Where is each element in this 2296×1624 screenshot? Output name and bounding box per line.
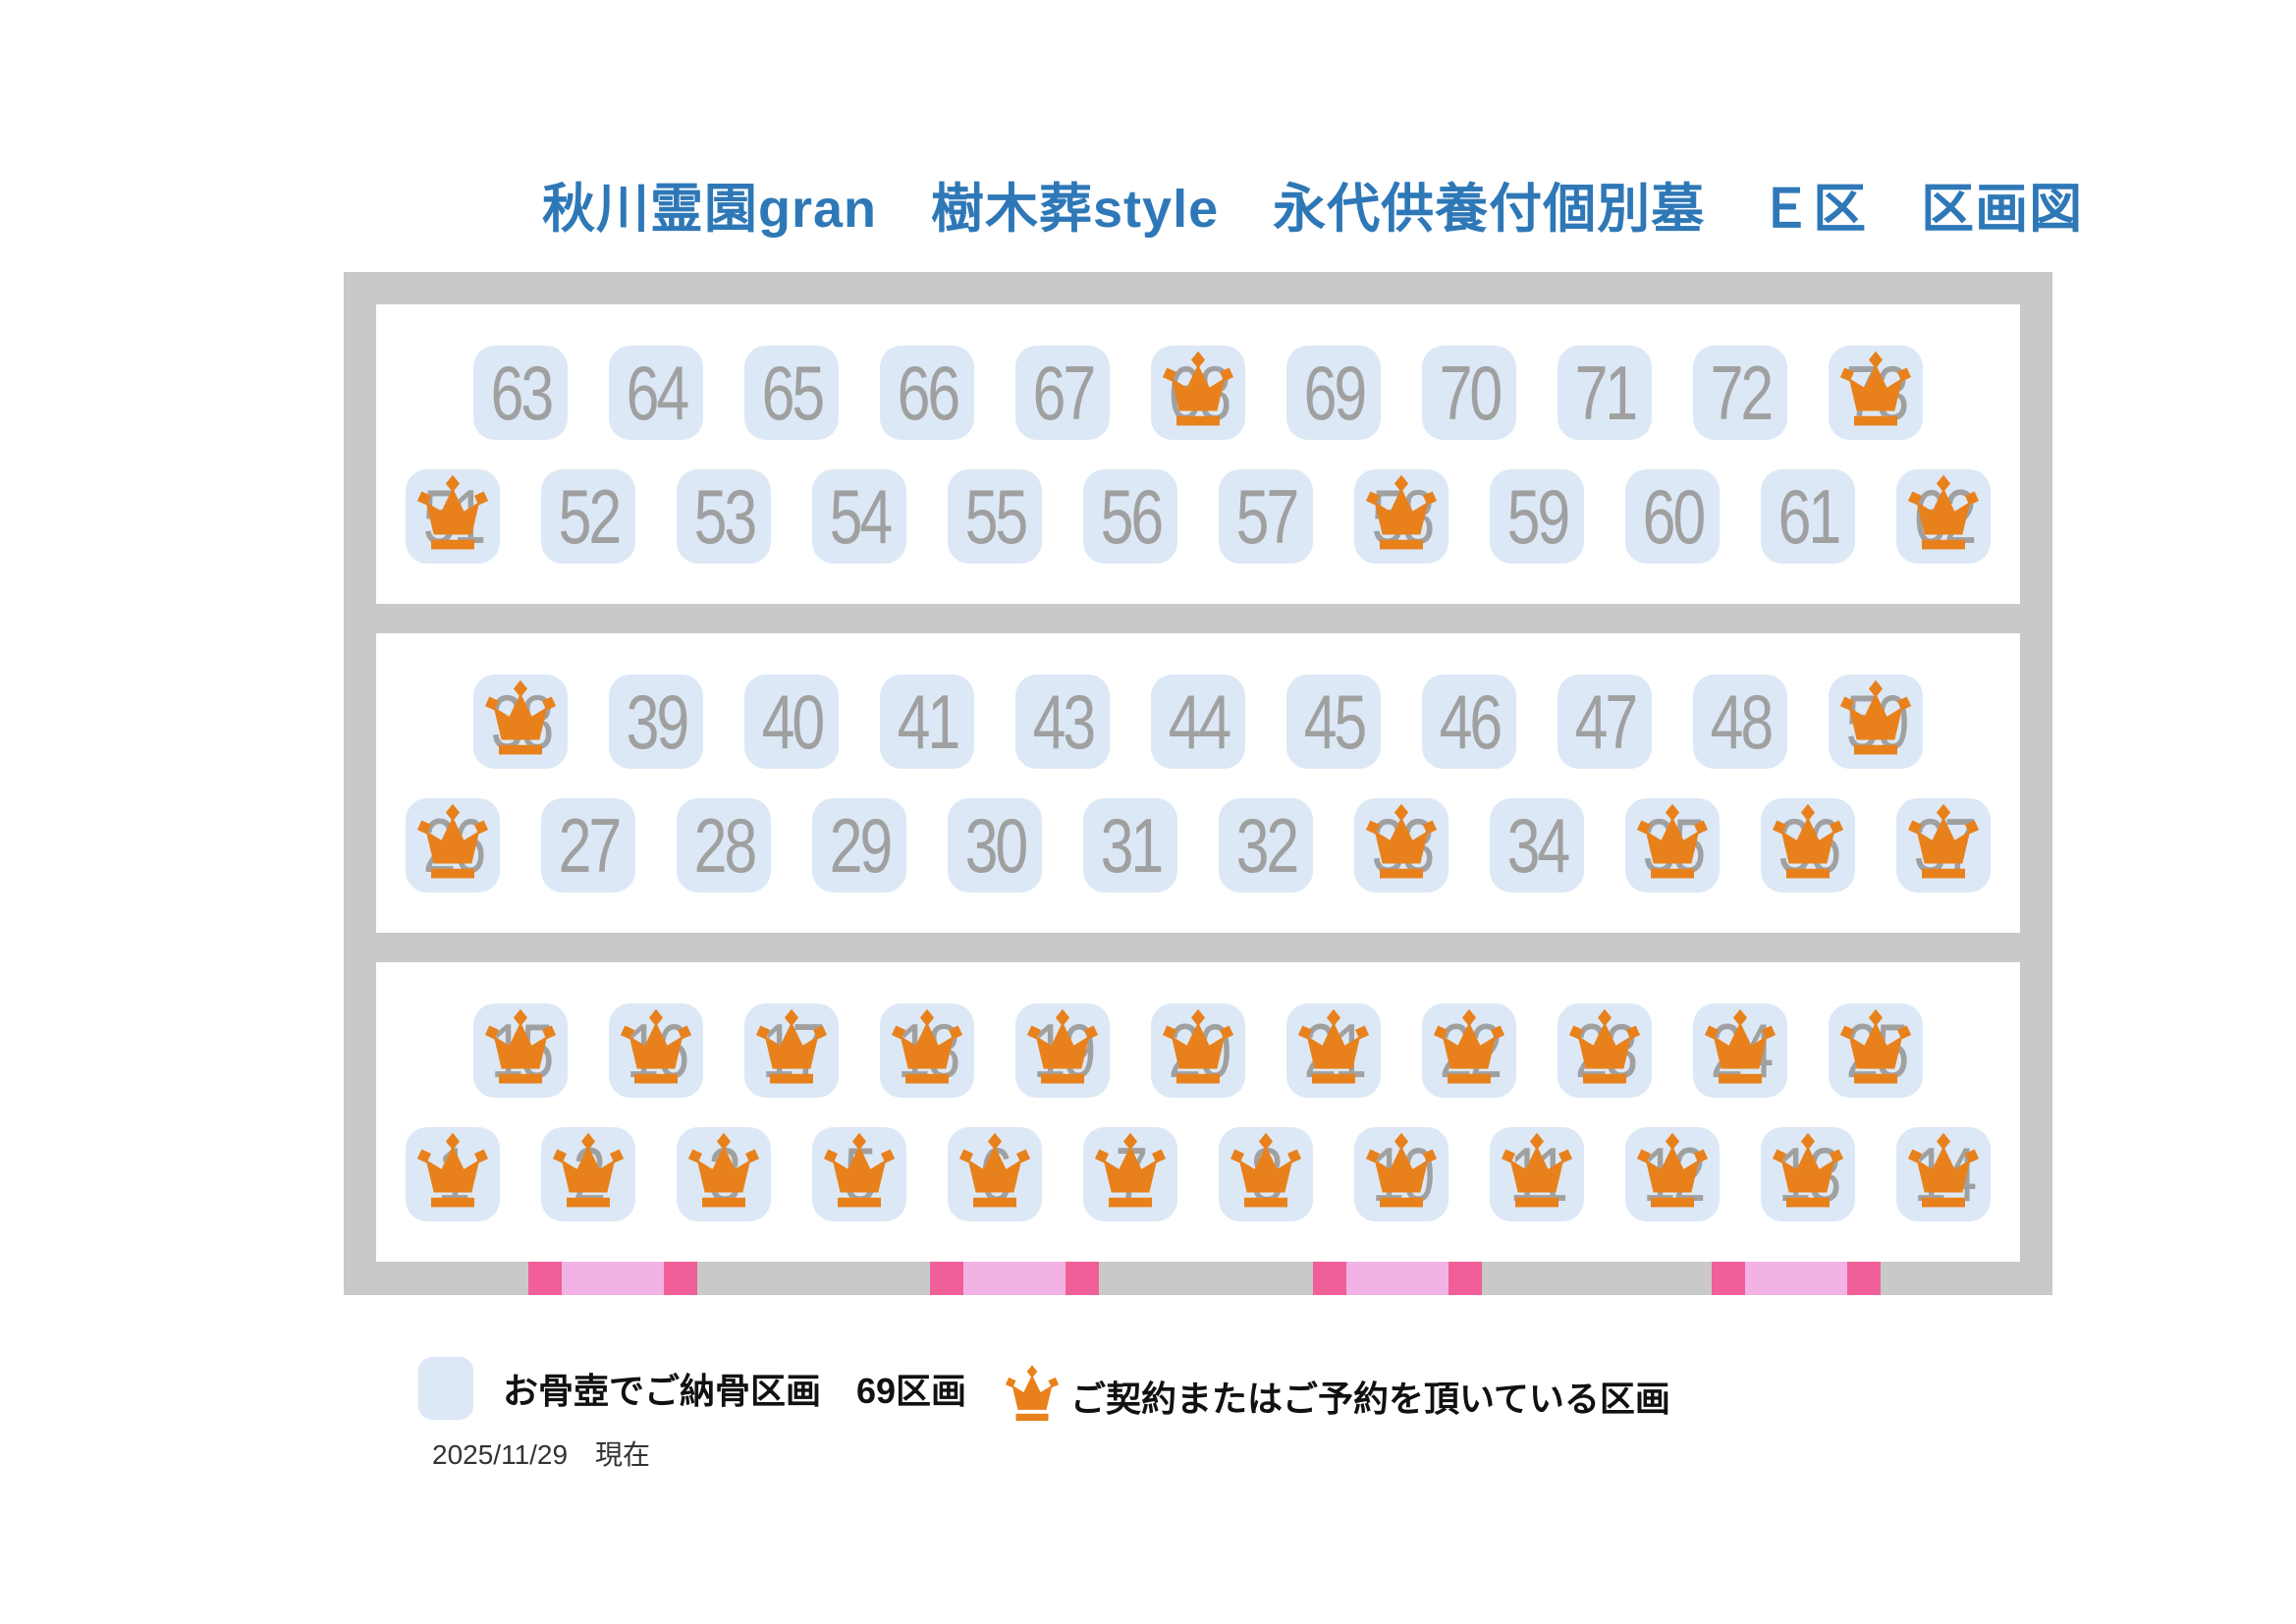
crown-icon (952, 1131, 1038, 1218)
plot-cell-36: 36 (1761, 798, 1855, 893)
plot-cell-6: 6 (948, 1127, 1042, 1221)
plot-cell-65: 65 (744, 346, 839, 440)
plot-number: 30 (964, 807, 1024, 884)
crown-icon (1000, 1357, 1065, 1435)
crown-icon (1765, 802, 1851, 889)
crown-icon (748, 1007, 835, 1094)
crown-icon (1629, 802, 1716, 889)
plot-cell-52: 52 (541, 469, 635, 564)
plot-number: 44 (1168, 683, 1228, 760)
plot-cell-47: 47 (1558, 675, 1652, 769)
plot-row: 63 64 65 66 67 68 69 70 71 72 73 (473, 346, 1923, 440)
map-frame: 63 64 65 66 67 68 69 70 71 72 73 (344, 272, 2052, 1295)
plot-cell-64: 64 (609, 346, 703, 440)
plot-cell-12: 12 (1625, 1127, 1720, 1221)
plot-number: 34 (1506, 807, 1566, 884)
panel-2: 38 39 40 41 43 44 45 46 47 48 50 (376, 633, 2020, 933)
crown-icon (681, 1131, 767, 1218)
plot-cell-50: 50 (1829, 675, 1923, 769)
plot-cell-14: 14 (1896, 1127, 1991, 1221)
plot-cell-39: 39 (609, 675, 703, 769)
legend-available: お骨壺でご納骨区画 69区画 (418, 1357, 966, 1420)
legend-reserved-label: ご契約またはご予約を頂いている区画 (1070, 1371, 1670, 1422)
entrance-marker-dark (1449, 1262, 1482, 1295)
crown-icon (545, 1131, 631, 1218)
plot-cell-28: 28 (677, 798, 771, 893)
plot-cell-70: 70 (1422, 346, 1516, 440)
plot-cell-1: 1 (406, 1127, 500, 1221)
plot-cell-55: 55 (948, 469, 1042, 564)
legend-reserved: ご契約またはご予約を頂いている区画 (1000, 1357, 1670, 1435)
plot-cell-51: 51 (406, 469, 500, 564)
plot-number: 39 (626, 683, 685, 760)
plot-number: 64 (626, 354, 685, 431)
plot-cell-67: 67 (1015, 346, 1110, 440)
plot-cell-13: 13 (1761, 1127, 1855, 1221)
plot-cell-7: 7 (1083, 1127, 1177, 1221)
crown-icon (1358, 473, 1445, 560)
plot-cell-46: 46 (1422, 675, 1516, 769)
entrance-marker-light (963, 1262, 1066, 1295)
plot-number: 52 (558, 478, 618, 555)
crown-icon (477, 678, 564, 765)
legend-available-label: お骨壺でご納骨区画 69区画 (503, 1363, 966, 1414)
crown-icon (1900, 473, 1987, 560)
plot-cell-44: 44 (1151, 675, 1245, 769)
plot-cell-60: 60 (1625, 469, 1720, 564)
plot-cell-18: 18 (880, 1003, 974, 1098)
entrance-marker-dark (1066, 1262, 1099, 1295)
crown-icon (410, 473, 496, 560)
entrance-marker-dark (528, 1262, 562, 1295)
plot-number: 46 (1439, 683, 1499, 760)
plot-cell-20: 20 (1151, 1003, 1245, 1098)
plot-cell-69: 69 (1286, 346, 1381, 440)
plot-cell-29: 29 (812, 798, 906, 893)
plot-cell-25: 25 (1829, 1003, 1923, 1098)
plot-cell-71: 71 (1558, 346, 1652, 440)
plot-number: 60 (1642, 478, 1702, 555)
crown-icon (1765, 1131, 1851, 1218)
entrance-marker-dark (930, 1262, 963, 1295)
entrance-marker-light (1346, 1262, 1449, 1295)
plot-number: 56 (1100, 478, 1160, 555)
plot-cell-37: 37 (1896, 798, 1991, 893)
plot-number: 67 (1032, 354, 1092, 431)
date-stamp: 2025/11/29 現在 (432, 1434, 650, 1473)
entrance-marker-dark (664, 1262, 697, 1295)
plot-number: 61 (1777, 478, 1837, 555)
plot-cell-62: 62 (1896, 469, 1991, 564)
crown-icon (816, 1131, 902, 1218)
crown-icon (1087, 1131, 1174, 1218)
plot-number: 69 (1303, 354, 1363, 431)
plot-cell-73: 73 (1829, 346, 1923, 440)
plot-cell-8: 8 (1219, 1127, 1313, 1221)
plot-number: 57 (1235, 478, 1295, 555)
crown-icon (1155, 350, 1241, 436)
plot-cell-32: 32 (1219, 798, 1313, 893)
plot-cell-35: 35 (1625, 798, 1720, 893)
plot-row: 38 39 40 41 43 44 45 46 47 48 50 (473, 675, 1923, 769)
plot-cell-54: 54 (812, 469, 906, 564)
crown-icon (1426, 1007, 1512, 1094)
plot-cell-24: 24 (1693, 1003, 1787, 1098)
plot-cell-72: 72 (1693, 346, 1787, 440)
plot-cell-5: 5 (812, 1127, 906, 1221)
plot-cell-22: 22 (1422, 1003, 1516, 1098)
plot-cell-2: 2 (541, 1127, 635, 1221)
plot-cell-57: 57 (1219, 469, 1313, 564)
plot-cell-16: 16 (609, 1003, 703, 1098)
plot-cell-68: 68 (1151, 346, 1245, 440)
crown-icon (1290, 1007, 1377, 1094)
entrance-marker-dark (1313, 1262, 1346, 1295)
crown-icon (410, 1131, 496, 1218)
plot-number: 29 (829, 807, 889, 884)
plot-number: 28 (693, 807, 753, 884)
plot-number: 27 (558, 807, 618, 884)
page-title: 秋川霊園gran 樹木葬style 永代供養付個別墓 Ｅ区 区画図 (542, 165, 2083, 243)
plot-row: 1 2 3 5 (406, 1127, 1991, 1221)
plot-map-page: { "title": "秋川霊園gran 樹木葬style 永代供養付個別墓 Ｅ… (0, 0, 2296, 1624)
crown-icon (1629, 1131, 1716, 1218)
plot-cell-40: 40 (744, 675, 839, 769)
plot-cell-63: 63 (473, 346, 568, 440)
plot-cell-43: 43 (1015, 675, 1110, 769)
plot-cell-41: 41 (880, 675, 974, 769)
plot-number: 53 (693, 478, 753, 555)
plot-number: 55 (964, 478, 1024, 555)
plot-cell-33: 33 (1354, 798, 1449, 893)
crown-icon (477, 1007, 564, 1094)
plot-cell-11: 11 (1490, 1127, 1584, 1221)
plot-cell-3: 3 (677, 1127, 771, 1221)
plot-number: 70 (1439, 354, 1499, 431)
plot-cell-45: 45 (1286, 675, 1381, 769)
entrance-marker-light (562, 1262, 664, 1295)
plot-number: 43 (1032, 683, 1092, 760)
plot-number: 41 (897, 683, 957, 760)
plot-cell-61: 61 (1761, 469, 1855, 564)
plot-cell-15: 15 (473, 1003, 568, 1098)
plot-cell-27: 27 (541, 798, 635, 893)
entrance-marker-dark (1712, 1262, 1745, 1295)
crown-icon (1832, 1007, 1919, 1094)
plot-cell-59: 59 (1490, 469, 1584, 564)
crown-icon (1900, 1131, 1987, 1218)
plot-number: 66 (897, 354, 957, 431)
crown-icon (1223, 1131, 1309, 1218)
plot-cell-23: 23 (1558, 1003, 1652, 1098)
plot-cell-19: 19 (1015, 1003, 1110, 1098)
crown-icon (884, 1007, 970, 1094)
panel-1: 63 64 65 66 67 68 69 70 71 72 73 (376, 304, 2020, 604)
panel-3: 15 16 17 18 (376, 962, 2020, 1262)
plot-number: 31 (1100, 807, 1160, 884)
crown-icon (1358, 802, 1445, 889)
plot-number: 47 (1574, 683, 1634, 760)
plot-cell-21: 21 (1286, 1003, 1381, 1098)
plot-number: 71 (1574, 354, 1634, 431)
crown-icon (1832, 678, 1919, 765)
plot-row: 26 27 28 29 30 31 32 33 (406, 798, 1991, 893)
crown-icon (1494, 1131, 1580, 1218)
plot-cell-30: 30 (948, 798, 1042, 893)
crown-icon (1561, 1007, 1648, 1094)
plot-row: 15 16 17 18 (473, 1003, 1923, 1098)
plot-cell-53: 53 (677, 469, 771, 564)
plot-cell-10: 10 (1354, 1127, 1449, 1221)
plot-cell-38: 38 (473, 675, 568, 769)
plot-cell-48: 48 (1693, 675, 1787, 769)
plot-number: 45 (1303, 683, 1363, 760)
crown-icon (410, 802, 496, 889)
plot-cell-56: 56 (1083, 469, 1177, 564)
plot-cell-66: 66 (880, 346, 974, 440)
plot-number: 48 (1710, 683, 1770, 760)
plot-number: 63 (490, 354, 550, 431)
entrance-marker-dark (1847, 1262, 1881, 1295)
entrance-marker-light (1745, 1262, 1847, 1295)
plot-number: 59 (1506, 478, 1566, 555)
plot-cell-34: 34 (1490, 798, 1584, 893)
plot-number: 65 (761, 354, 821, 431)
available-plot-swatch (418, 1357, 473, 1420)
plot-cell-58: 58 (1354, 469, 1449, 564)
crown-icon (1697, 1007, 1783, 1094)
crown-icon (1832, 350, 1919, 436)
plot-cell-31: 31 (1083, 798, 1177, 893)
crown-icon (613, 1007, 699, 1094)
plot-number: 54 (829, 478, 889, 555)
plot-number: 32 (1235, 807, 1295, 884)
plot-row: 51 52 53 54 55 56 57 58 (406, 469, 1991, 564)
plot-number: 40 (761, 683, 821, 760)
crown-icon (1019, 1007, 1106, 1094)
plot-number: 72 (1710, 354, 1770, 431)
crown-icon (1358, 1131, 1445, 1218)
crown-icon (1155, 1007, 1241, 1094)
crown-icon (1900, 802, 1987, 889)
plot-cell-17: 17 (744, 1003, 839, 1098)
plot-cell-26: 26 (406, 798, 500, 893)
